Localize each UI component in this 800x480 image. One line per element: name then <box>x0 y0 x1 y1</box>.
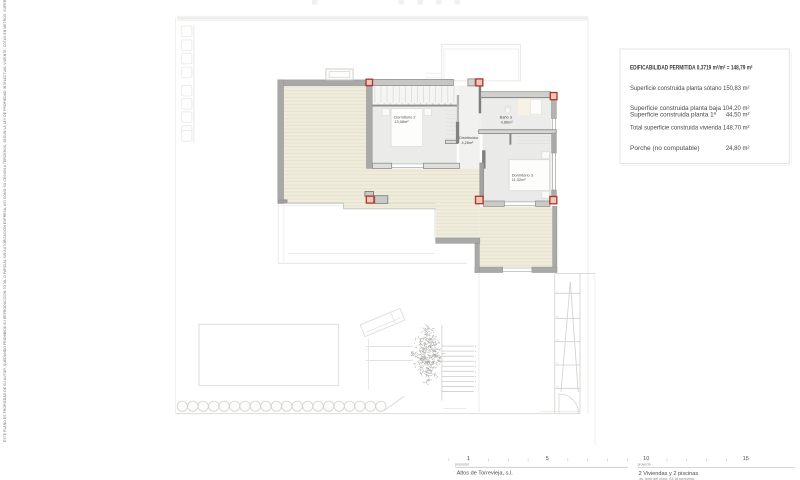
svg-text:104,20 m²: 104,20 m² <box>722 106 749 112</box>
svg-text:4,86m²: 4,86m² <box>501 119 514 124</box>
svg-text:Superficie construida planta 1: Superficie construida planta 1ª <box>630 111 717 118</box>
svg-text:EDIFICABILIDAD PERMITIDA 0,371: EDIFICABILIDAD PERMITIDA 0,3719 m²/m² = … <box>630 64 753 71</box>
svg-text:proyecto: proyecto <box>638 463 651 467</box>
svg-text:ESTE PLANO ES PROPIEDAD DE SU: ESTE PLANO ES PROPIEDAD DE SU AUTOR, QUE… <box>3 0 7 442</box>
svg-text:Porche (no computable): Porche (no computable) <box>630 146 700 152</box>
svg-text:Superficie construida planta s: Superficie construida planta sótano 150,… <box>630 86 750 92</box>
svg-text:15: 15 <box>743 456 749 462</box>
svg-text:4,28m²: 4,28m² <box>462 141 475 145</box>
svg-text:24,80 m²: 24,80 m² <box>726 146 750 152</box>
svg-text:10: 10 <box>643 456 649 462</box>
svg-text:Altos de Torrevieja, s.l.: Altos de Torrevieja, s.l. <box>457 471 514 477</box>
svg-text:2 Viviendas y 2 piscinas: 2 Viviendas y 2 piscinas <box>639 471 699 477</box>
svg-text:Distribuidor: Distribuidor <box>459 136 479 140</box>
svg-text:1: 1 <box>467 456 470 462</box>
svg-text:Total superficie construida vi: Total superficie construida vivienda 148… <box>630 125 750 131</box>
svg-text:Superficie construida planta b: Superficie construida planta baja <box>630 106 722 112</box>
svg-text:44,50 m²: 44,50 m² <box>726 112 750 118</box>
svg-text:13,08m²: 13,08m² <box>394 119 409 124</box>
svg-text:11,32m²: 11,32m² <box>512 177 527 182</box>
svg-text:5: 5 <box>546 456 549 462</box>
svg-text:promotor: promotor <box>455 463 469 467</box>
